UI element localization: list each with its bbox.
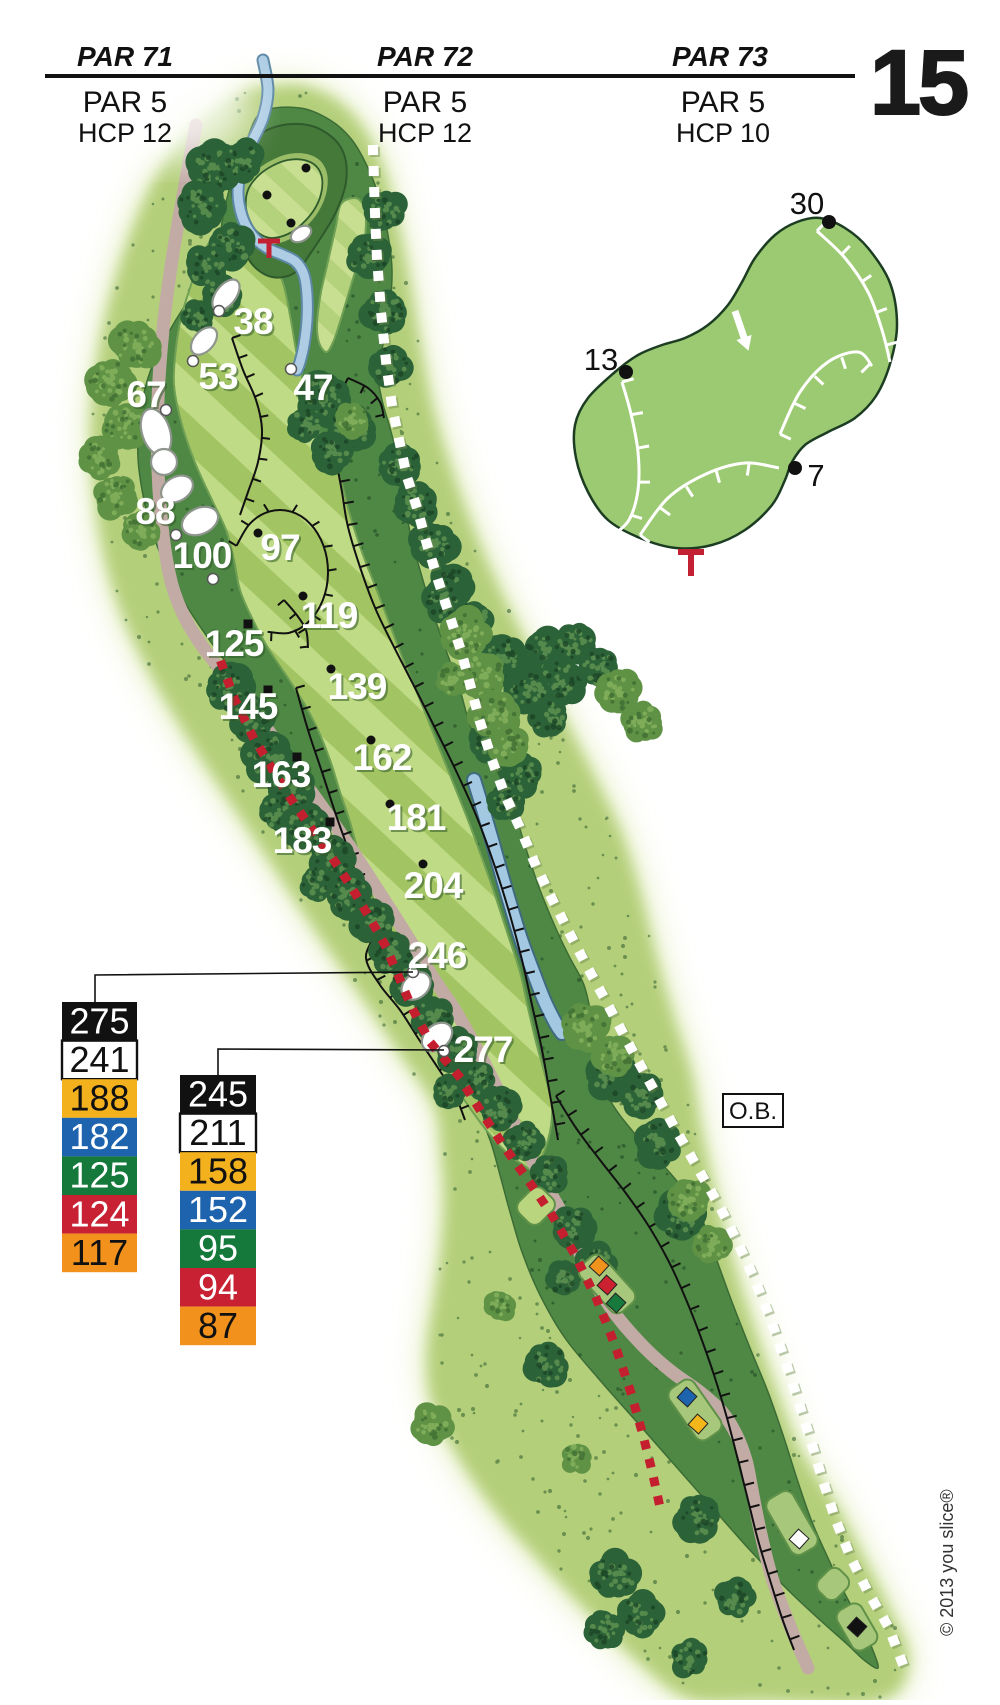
svg-text:182: 182 bbox=[69, 1116, 129, 1157]
svg-text:53: 53 bbox=[198, 356, 238, 397]
svg-text:277: 277 bbox=[454, 1029, 513, 1070]
svg-text:HCP 12: HCP 12 bbox=[78, 118, 172, 148]
svg-text:162: 162 bbox=[353, 737, 412, 778]
svg-text:HCP 12: HCP 12 bbox=[378, 118, 472, 148]
svg-text:145: 145 bbox=[219, 686, 278, 727]
svg-text:97: 97 bbox=[260, 527, 299, 568]
svg-text:94: 94 bbox=[198, 1266, 238, 1307]
svg-text:152: 152 bbox=[188, 1189, 248, 1230]
svg-text:125: 125 bbox=[205, 623, 264, 664]
svg-text:183: 183 bbox=[273, 820, 332, 861]
svg-text:PAR 5: PAR 5 bbox=[383, 86, 467, 119]
svg-text:7: 7 bbox=[807, 458, 824, 493]
svg-text:275: 275 bbox=[69, 1000, 129, 1041]
svg-text:88: 88 bbox=[135, 491, 175, 532]
svg-text:O.B.: O.B. bbox=[729, 1098, 777, 1125]
svg-text:188: 188 bbox=[69, 1078, 129, 1119]
svg-text:30: 30 bbox=[790, 186, 824, 221]
svg-text:© 2013 you slice®: © 2013 you slice® bbox=[937, 1489, 957, 1636]
svg-text:119: 119 bbox=[301, 595, 358, 636]
svg-text:PAR 5: PAR 5 bbox=[83, 86, 167, 119]
svg-text:246: 246 bbox=[408, 935, 467, 976]
svg-text:158: 158 bbox=[188, 1151, 248, 1192]
svg-text:241: 241 bbox=[69, 1039, 129, 1080]
svg-text:87: 87 bbox=[198, 1305, 238, 1346]
svg-text:245: 245 bbox=[188, 1073, 248, 1114]
svg-text:13: 13 bbox=[584, 342, 618, 377]
svg-text:139: 139 bbox=[328, 666, 387, 707]
svg-text:100: 100 bbox=[173, 535, 232, 576]
svg-text:124: 124 bbox=[69, 1193, 129, 1234]
svg-text:HCP 10: HCP 10 bbox=[676, 118, 770, 148]
svg-text:67: 67 bbox=[126, 374, 165, 415]
svg-text:117: 117 bbox=[71, 1232, 128, 1273]
svg-text:95: 95 bbox=[198, 1228, 238, 1269]
svg-text:PAR 73: PAR 73 bbox=[672, 41, 768, 72]
svg-text:125: 125 bbox=[69, 1155, 129, 1196]
svg-text:15: 15 bbox=[870, 32, 967, 134]
svg-text:47: 47 bbox=[293, 367, 332, 408]
svg-text:38: 38 bbox=[233, 301, 273, 342]
svg-text:181: 181 bbox=[387, 797, 446, 838]
svg-text:211: 211 bbox=[189, 1112, 246, 1153]
svg-text:PAR 72: PAR 72 bbox=[377, 41, 473, 72]
svg-text:204: 204 bbox=[404, 865, 464, 906]
svg-text:PAR 71: PAR 71 bbox=[77, 41, 173, 72]
svg-text:163: 163 bbox=[252, 754, 311, 795]
svg-text:PAR 5: PAR 5 bbox=[681, 86, 765, 119]
